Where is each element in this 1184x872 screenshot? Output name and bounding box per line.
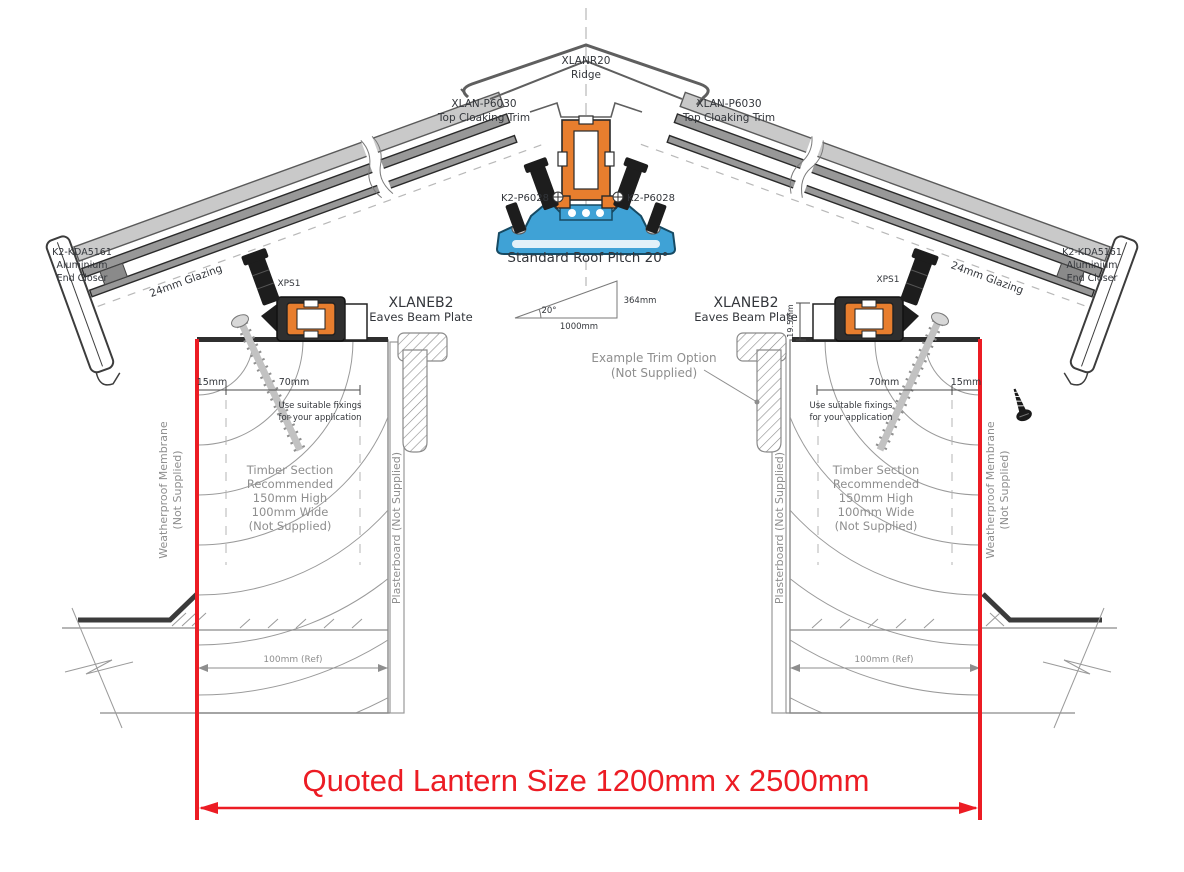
- right-membrane-label-line1: Weatherproof Membrane: [984, 421, 997, 559]
- right-timber-note-line4: 100mm Wide: [838, 505, 915, 519]
- pitch-run-label: 1000mm: [560, 322, 598, 332]
- right-glazing-bar-label: K2-P6028: [627, 193, 675, 204]
- left-eaves-name-label: Eaves Beam Plate: [369, 310, 472, 324]
- right-timber-note-line5: (Not Supplied): [835, 519, 918, 533]
- left-end-closer-line3-label: End Closer: [57, 273, 108, 284]
- left-membrane-label-line2: (Not Supplied): [171, 450, 184, 529]
- left-fixings-note-line1: Use suitable fixings: [279, 401, 363, 411]
- right-timber-note-line1: Timber Section: [832, 463, 920, 477]
- ridge-thermal-break-orange: [556, 116, 616, 208]
- trim-option-line1-label: Example Trim Option: [591, 351, 716, 365]
- right-fixing-dim-label: 70mm: [869, 377, 900, 388]
- right-cloaking-name-label: Top Cloaking Trim: [682, 112, 775, 124]
- right-cloaking-code-label: XLAN-P6030: [696, 98, 761, 110]
- left-ref-dim-label: 100mm (Ref): [263, 655, 322, 665]
- left-xps-label: XPS1: [277, 279, 300, 289]
- left-timber-note-line1: Timber Section: [246, 463, 334, 477]
- left-fixings-note-line2: for your application: [278, 413, 361, 423]
- right-timber-note-line2: Recommended: [833, 477, 919, 491]
- right-fixings-note-line2: for your application: [809, 413, 892, 423]
- left-timber-note-line5: (Not Supplied): [249, 519, 332, 533]
- left-membrane-label-line1: Weatherproof Membrane: [157, 421, 170, 559]
- right-eaves-code-label: XLANEB2: [713, 295, 778, 311]
- right-fixings-note-line1: Use suitable fixings: [810, 401, 894, 411]
- left-timber-note-line3: 150mm High: [253, 491, 327, 505]
- trim-option-line2-label: (Not Supplied): [611, 366, 697, 380]
- left-eaves-code-label: XLANEB2: [388, 295, 453, 311]
- right-end-closer-code-label: K2-KDA5161: [1062, 247, 1122, 258]
- quoted-size-label: Quoted Lantern Size 1200mm x 2500mm: [303, 763, 870, 798]
- right-end-closer-line3-label: End Closer: [1067, 273, 1118, 284]
- left-end-closer-line2-label: Aluminium: [57, 260, 108, 271]
- pitch-note-label: Standard Roof Pitch 20°: [507, 250, 668, 266]
- pitch-angle-label: 20°: [541, 306, 556, 316]
- left-xps-clamp: [241, 248, 284, 308]
- technical-drawing-page: { "colors": { "red": "#ec1c24", "blue": …: [0, 0, 1184, 872]
- trim-option-leader: [704, 370, 760, 405]
- beam-height-dimension: [796, 303, 810, 340]
- right-edge-dim-label: 15mm: [951, 377, 982, 388]
- left-cloaking-name-label: Top Cloaking Trim: [437, 112, 530, 124]
- right-end-closer-line2-label: Aluminium: [1067, 260, 1118, 271]
- left-eaves-beam: [261, 297, 367, 341]
- left-end-closer-code-label: K2-KDA5161: [52, 247, 112, 258]
- ridge-code-label: XLANR20: [562, 55, 611, 67]
- right-timber-note-line3: 150mm High: [839, 491, 913, 505]
- right-xps-label: XPS1: [876, 275, 899, 285]
- left-glazing-bar-label: K2-P6028: [501, 193, 549, 204]
- right-ref-dim-label: 100mm (Ref): [854, 655, 913, 665]
- beam-height-dim-label: 19.5mm: [786, 304, 795, 338]
- pitch-triangle: [515, 281, 617, 318]
- ridge-name-label: Ridge: [571, 69, 601, 81]
- screw-icon: [1007, 386, 1033, 423]
- right-plasterboard-label: Plasterboard (Not Supplied): [773, 452, 786, 604]
- right-timber: [525, 340, 980, 795]
- left-cloaking-code-label: XLAN-P6030: [451, 98, 516, 110]
- left-timber-note-line2: Recommended: [247, 477, 333, 491]
- right-xps-clamp: [896, 248, 939, 308]
- roof-lantern-section-drawing: XLANR20 Ridge XLAN-P6030 Top Cloaking Tr…: [0, 0, 1184, 872]
- left-timber-note-line4: 100mm Wide: [252, 505, 329, 519]
- right-eaves-beam: [813, 297, 919, 341]
- left-fixing-dim-label: 70mm: [279, 377, 310, 388]
- left-trim-option: [398, 333, 447, 452]
- pitch-rise-label: 364mm: [624, 296, 657, 306]
- right-membrane-label-line2: (Not Supplied): [998, 450, 1011, 529]
- left-edge-dim-label: 15mm: [197, 377, 228, 388]
- right-eaves-name-label: Eaves Beam Plate: [694, 310, 797, 324]
- right-trim-option: [737, 333, 786, 452]
- left-plasterboard-label: Plasterboard (Not Supplied): [390, 452, 403, 604]
